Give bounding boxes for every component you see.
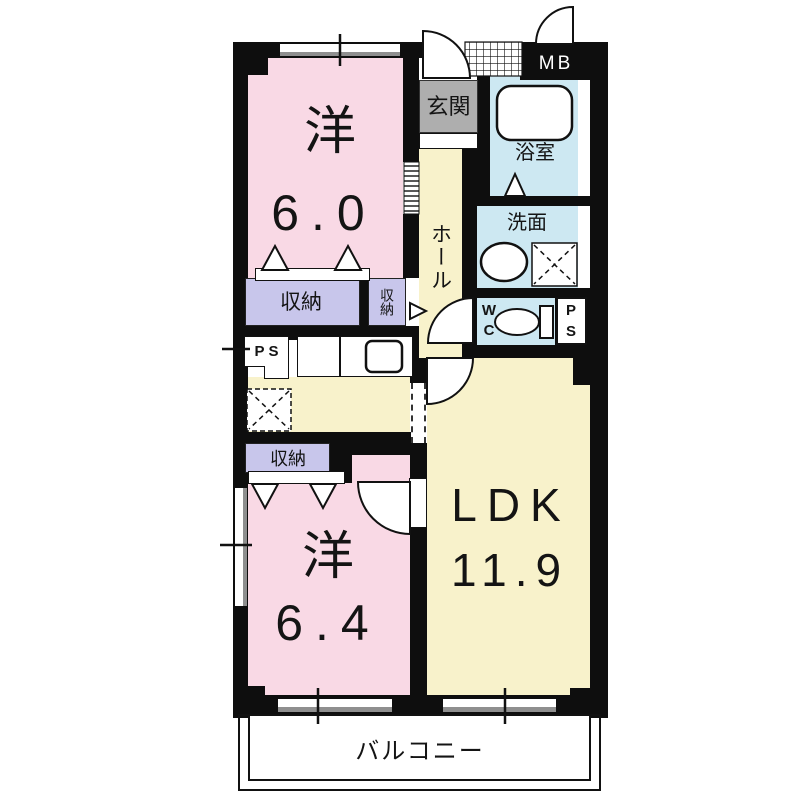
entrance-door-swing bbox=[423, 31, 470, 78]
closet-fold-mark-west2-b bbox=[310, 484, 336, 508]
entrance-label: 玄関 bbox=[421, 94, 476, 120]
ldk-west2-door-swing bbox=[358, 482, 410, 534]
bath-label: 浴室 bbox=[505, 141, 565, 165]
bathtub-icon bbox=[497, 86, 572, 140]
room-ldk-label: LDK bbox=[421, 479, 591, 531]
storage-lower-label: 収納 bbox=[249, 448, 327, 469]
toilet-icon bbox=[495, 306, 553, 338]
meterbox-label: MB bbox=[530, 51, 582, 75]
room-western-6-0-label: 洋 bbox=[280, 104, 380, 160]
floor-plan: 洋 6.0 玄関 MB 浴室 洗面 ホール W C P S PS 収納 収納 収… bbox=[0, 0, 800, 800]
room-western-6-0-area: 6.0 bbox=[238, 184, 398, 242]
room-western-6-4-label: 洋 bbox=[278, 529, 378, 585]
hall-ldk-door-swing bbox=[427, 358, 473, 404]
pipespace-right-label-p: P bbox=[561, 301, 581, 319]
hall-label: ホール bbox=[428, 210, 452, 305]
closet-fold-mark-west2-a bbox=[252, 484, 278, 508]
balcony-label: バルコニー bbox=[320, 738, 520, 766]
sliding-door-west1 bbox=[404, 162, 419, 214]
kitchen-sink-icon bbox=[366, 341, 402, 372]
room-ldk-area: 11.9 bbox=[421, 544, 591, 596]
washroom-label: 洗面 bbox=[497, 211, 557, 235]
storage-upper-right-label: 収納 bbox=[378, 281, 396, 323]
pipespace-left-label: PS bbox=[244, 342, 289, 360]
closet-fold-mark-west1-b bbox=[335, 246, 361, 270]
plan-symbols-overlay bbox=[0, 0, 800, 800]
wc-label-w: W bbox=[479, 301, 499, 319]
porch-hatch bbox=[465, 42, 522, 76]
storage-upper-left-label: 収納 bbox=[256, 290, 346, 314]
washing-machine-pan-icon bbox=[532, 243, 577, 286]
storage-upper-right-fold-mark bbox=[410, 303, 426, 319]
meterbox-door-swing bbox=[536, 7, 573, 44]
wc-label-c: C bbox=[479, 321, 499, 339]
washbasin-icon bbox=[481, 243, 527, 281]
pipespace-right-label-s: S bbox=[561, 322, 581, 340]
room-western-6-4-area: 6.4 bbox=[242, 594, 402, 652]
closet-fold-mark-west1-a bbox=[262, 246, 288, 270]
bath-fold-door-mark bbox=[505, 174, 525, 196]
refrigerator-space-icon bbox=[247, 389, 291, 431]
